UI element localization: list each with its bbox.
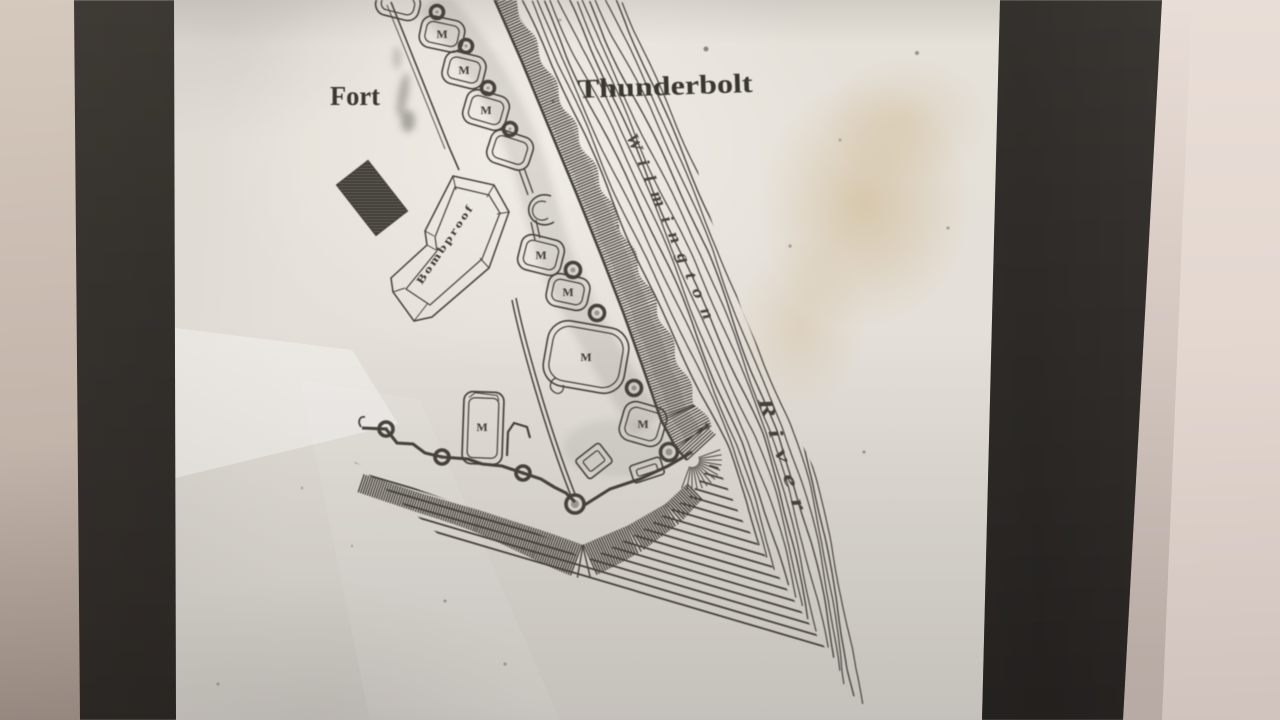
svg-text:M: M: [458, 63, 469, 77]
svg-text:Bombproof: Bombproof: [414, 202, 477, 287]
svg-text:M: M: [476, 420, 487, 434]
svg-text:Thunderbolt: Thunderbolt: [577, 68, 753, 104]
svg-text:Fort: Fort: [330, 81, 380, 111]
svg-text:M: M: [535, 248, 546, 262]
svg-text:M: M: [436, 27, 447, 41]
svg-text:M: M: [580, 350, 591, 364]
svg-text:M: M: [562, 285, 573, 299]
svg-text:M: M: [480, 103, 491, 117]
